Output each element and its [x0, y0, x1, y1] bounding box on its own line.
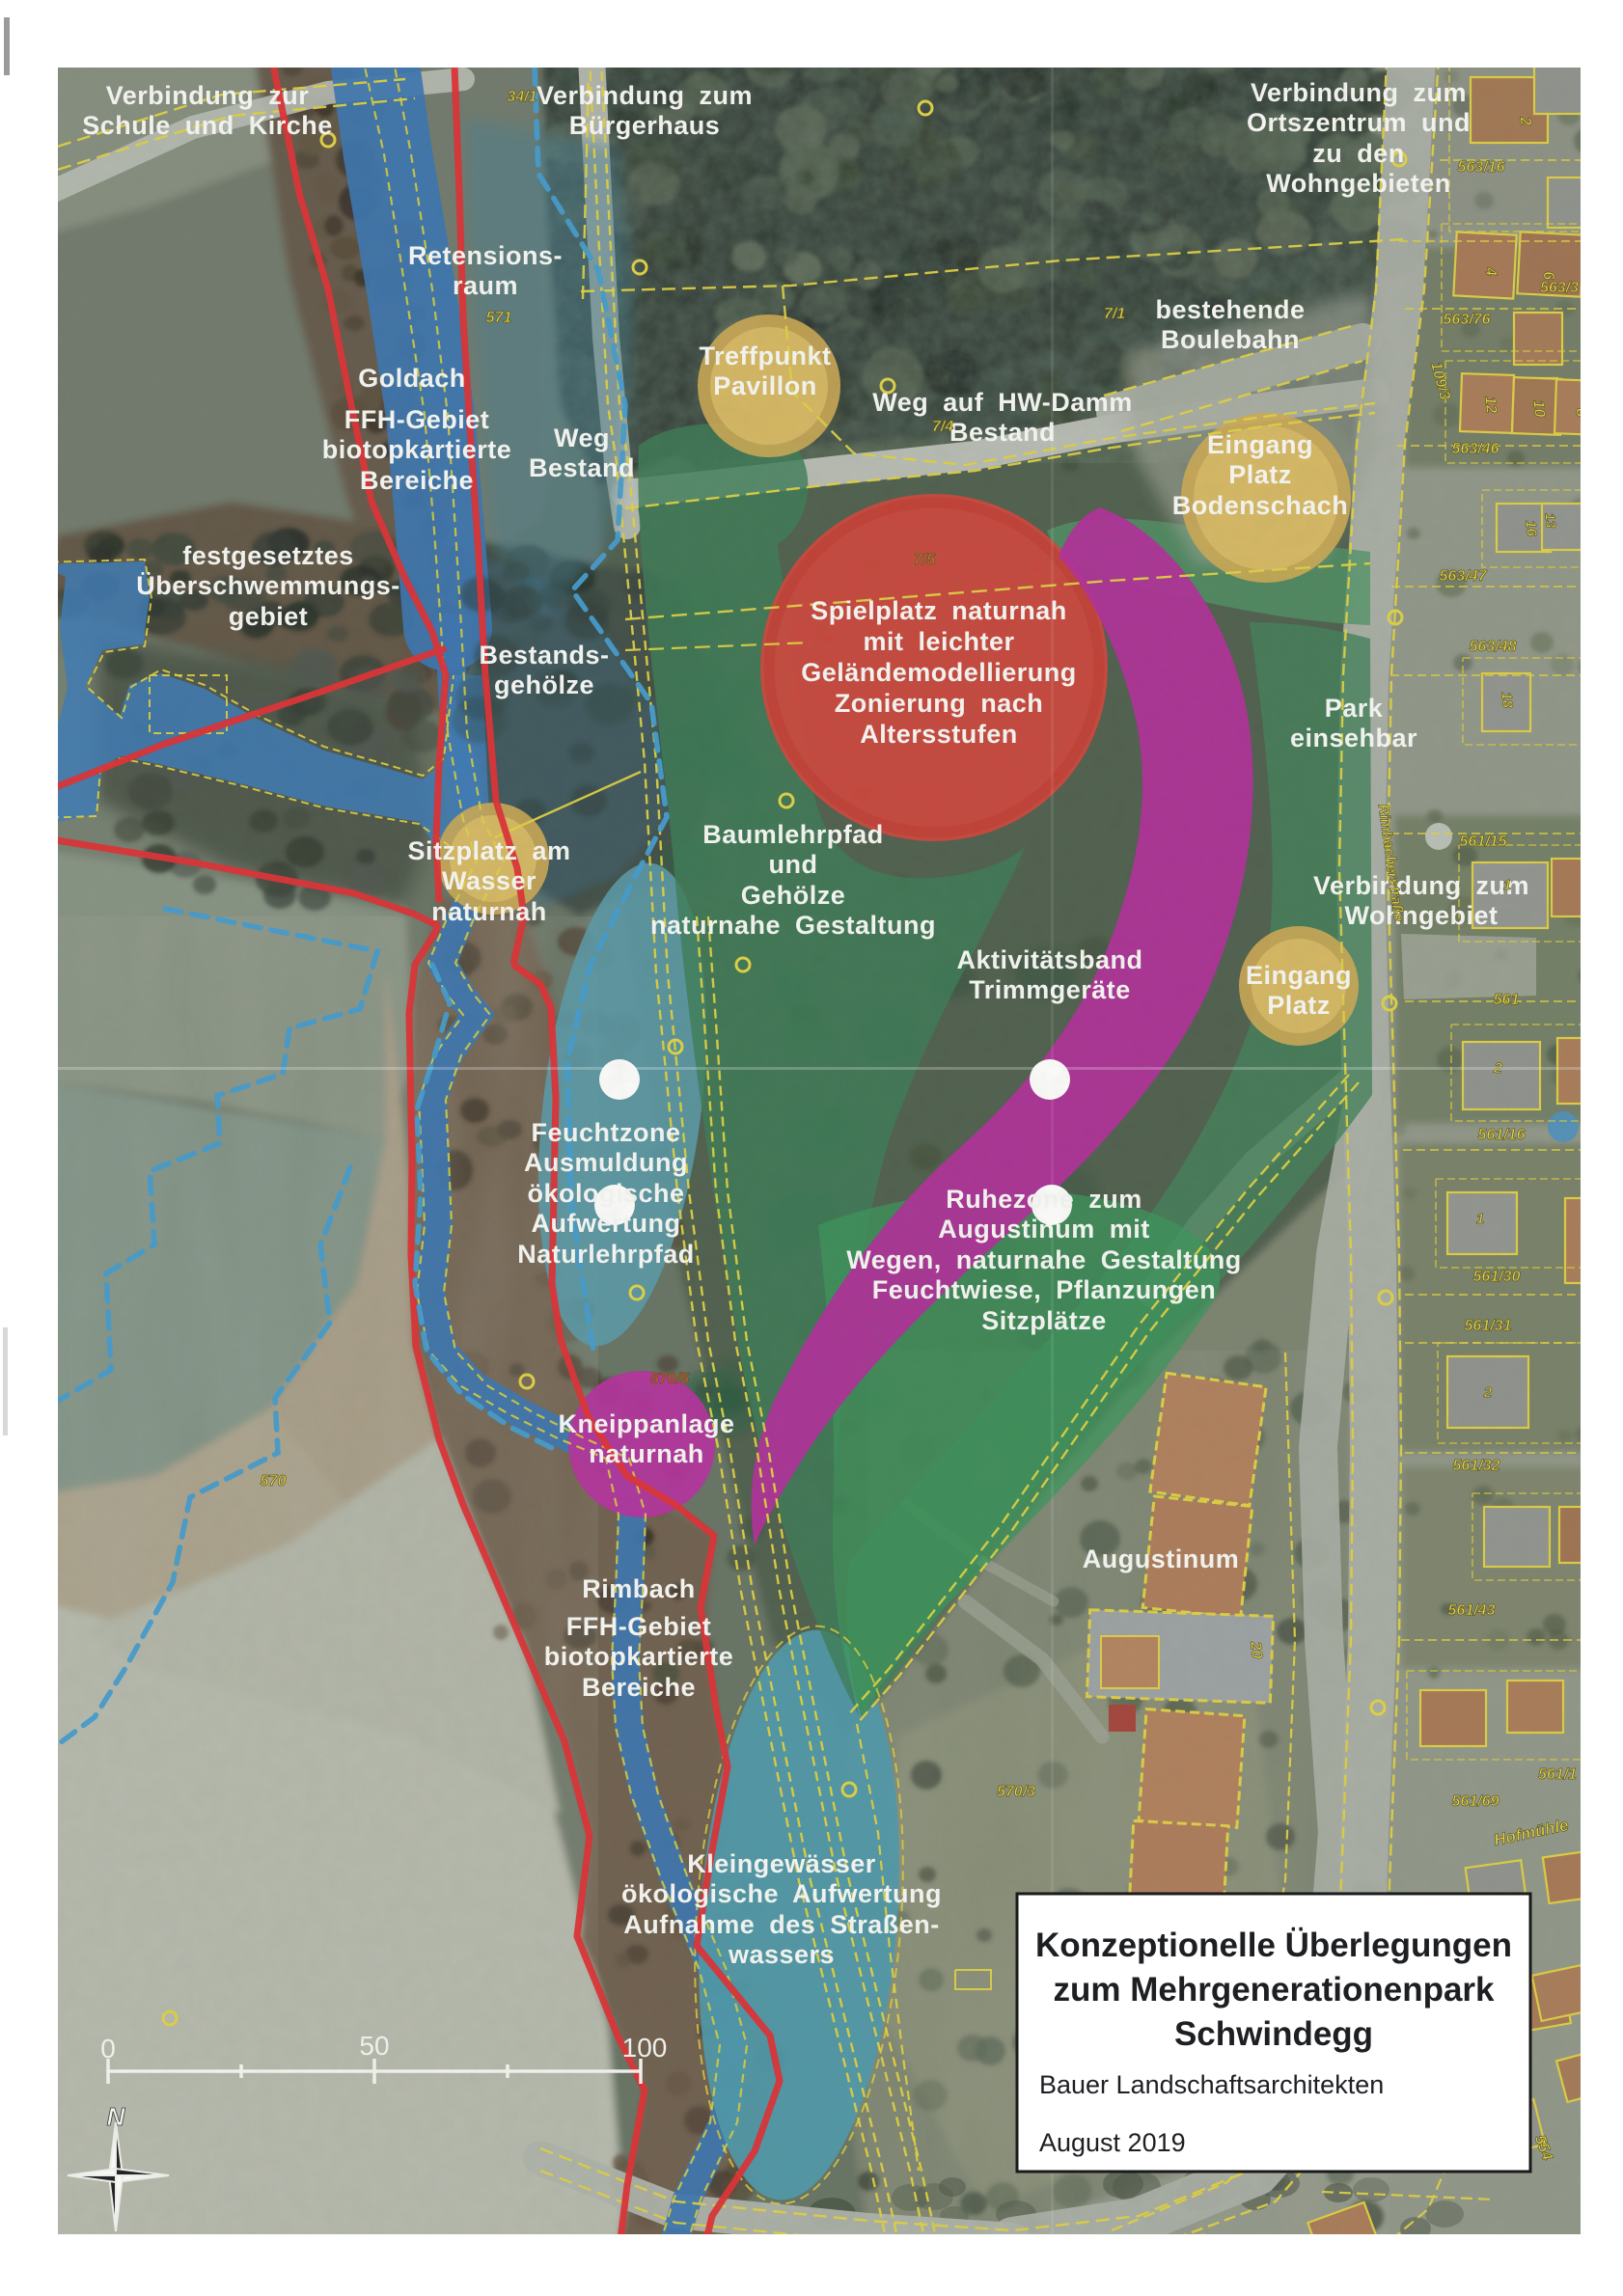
svg-text:Bauer Landschaftsarchitekten: Bauer Landschaftsarchitekten — [1039, 2070, 1384, 2099]
svg-text:August 2019: August 2019 — [1039, 2128, 1186, 2157]
svg-text:zum Mehrgenerationenpark: zum Mehrgenerationenpark — [1053, 1971, 1495, 2009]
svg-text:Konzeptionelle Überlegungen: Konzeptionelle Überlegungen — [1035, 1927, 1512, 1964]
svg-text:Schwindegg: Schwindegg — [1174, 2015, 1373, 2053]
